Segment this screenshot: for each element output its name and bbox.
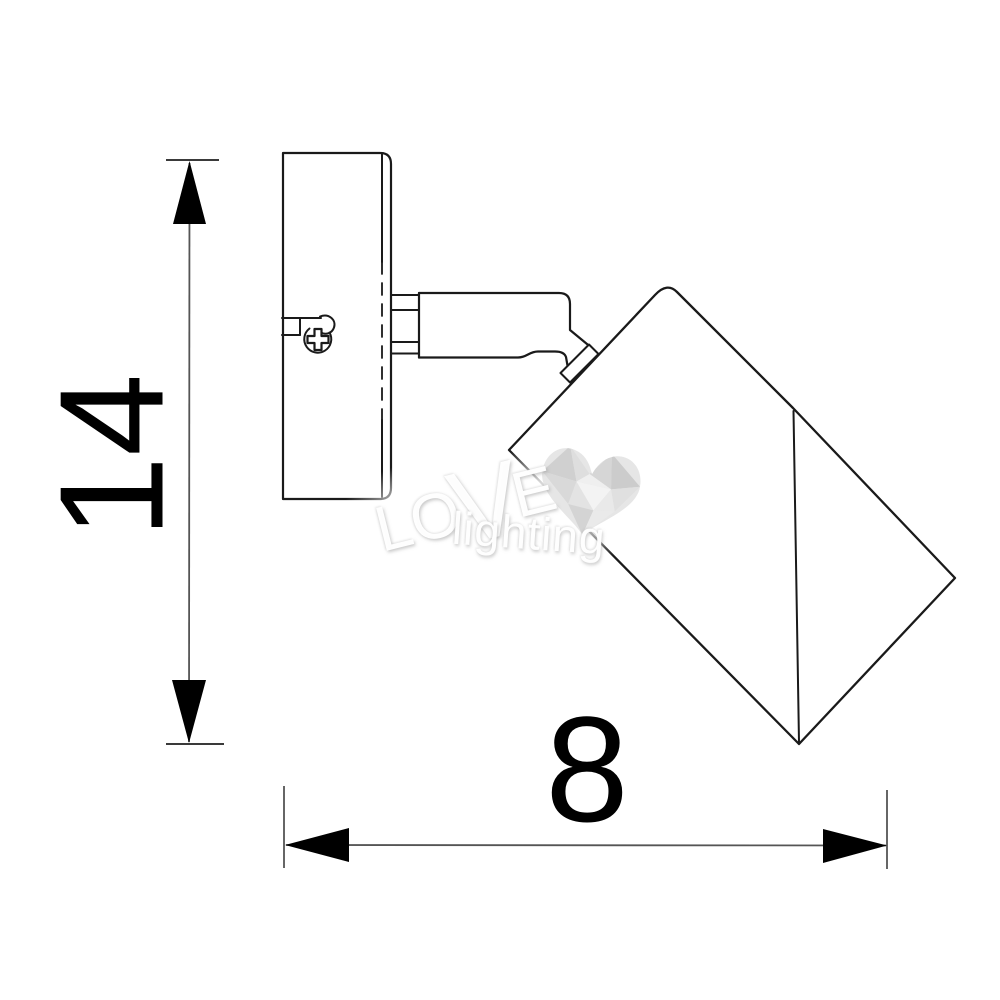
width-arrow-left-icon (285, 828, 349, 862)
technical-drawing-canvas: 14 8 (0, 0, 1000, 1000)
spotlight-dimension-diagram: 14 8 (0, 0, 1000, 1000)
arm-bottom-edge (419, 352, 570, 378)
width-dimension-label: 8 (545, 685, 628, 853)
width-arrow-right-icon (823, 829, 887, 863)
height-arrow-up-icon (173, 161, 206, 224)
height-arrow-down-icon (172, 680, 206, 743)
spotlight-head (509, 288, 955, 744)
support-arm (419, 293, 599, 383)
arm-top-and-right-edge (419, 293, 590, 347)
spotlight-head-outline (509, 288, 955, 744)
swivel-connector (391, 295, 419, 354)
height-dimension-label: 14 (30, 374, 195, 539)
